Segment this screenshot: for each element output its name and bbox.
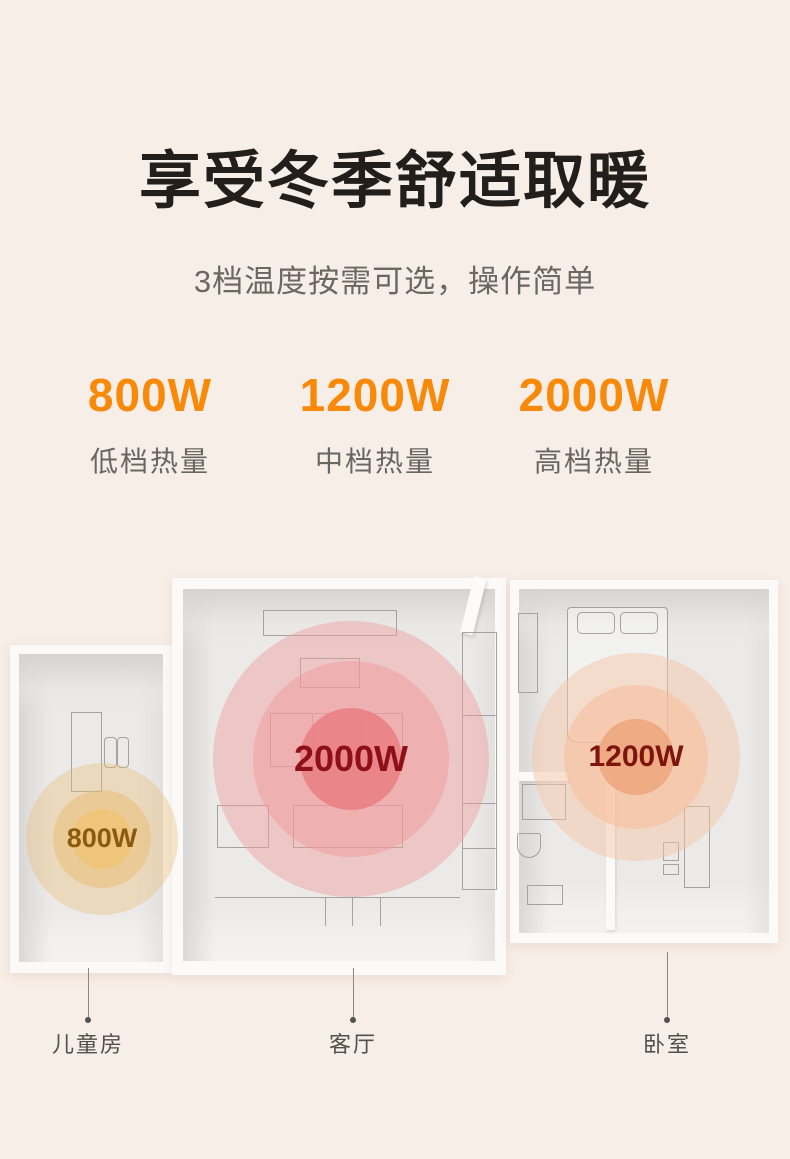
spec-low: 800W 低档热量 bbox=[88, 372, 212, 480]
pillow-outline bbox=[577, 612, 615, 634]
bath-cabinet-outline bbox=[527, 885, 563, 905]
bench-leg bbox=[380, 897, 381, 926]
heat-label-800w: 800W bbox=[42, 825, 162, 852]
bench-leg bbox=[325, 897, 326, 926]
spec-low-power: 800W bbox=[88, 372, 212, 418]
page-subtitle: 3档温度按需可选，操作简单 bbox=[0, 256, 790, 301]
spec-mid-power: 1200W bbox=[300, 372, 451, 418]
room-label-living: 客厅 bbox=[329, 1027, 377, 1059]
heat-label-1200w: 1200W bbox=[556, 742, 716, 772]
page-title: 享受冬季舒适取暖 bbox=[0, 148, 790, 216]
pointer-line-children bbox=[88, 968, 89, 1020]
room-label-bedroom: 卧室 bbox=[643, 1027, 691, 1059]
room-label-children: 儿童房 bbox=[52, 1027, 124, 1059]
spec-high: 2000W 高档热量 bbox=[519, 372, 670, 480]
pointer-dot-children bbox=[85, 1017, 91, 1023]
spec-low-label: 低档热量 bbox=[88, 440, 212, 480]
pointer-line-bedroom bbox=[667, 952, 668, 1020]
chair-outline bbox=[117, 737, 129, 768]
pointer-line-living bbox=[353, 968, 354, 1020]
bench-leg bbox=[352, 897, 353, 926]
wardrobe-outline bbox=[518, 613, 538, 693]
pointer-dot-bedroom bbox=[664, 1017, 670, 1023]
heat-label-2000w: 2000W bbox=[251, 741, 451, 777]
page: 享受冬季舒适取暖 3档温度按需可选，操作简单 800W 低档热量 1200W 中… bbox=[0, 0, 790, 1159]
nightstand-outline bbox=[663, 864, 679, 875]
spec-high-power: 2000W bbox=[519, 372, 670, 418]
counter-divider bbox=[462, 848, 497, 849]
toilet-outline bbox=[517, 833, 541, 858]
spec-mid-label: 中档热量 bbox=[300, 440, 451, 480]
spec-high-label: 高档热量 bbox=[519, 440, 670, 480]
pillow-outline bbox=[620, 612, 658, 634]
pointer-dot-living bbox=[350, 1017, 356, 1023]
spec-mid: 1200W 中档热量 bbox=[300, 372, 451, 480]
bench-outline bbox=[215, 897, 460, 898]
